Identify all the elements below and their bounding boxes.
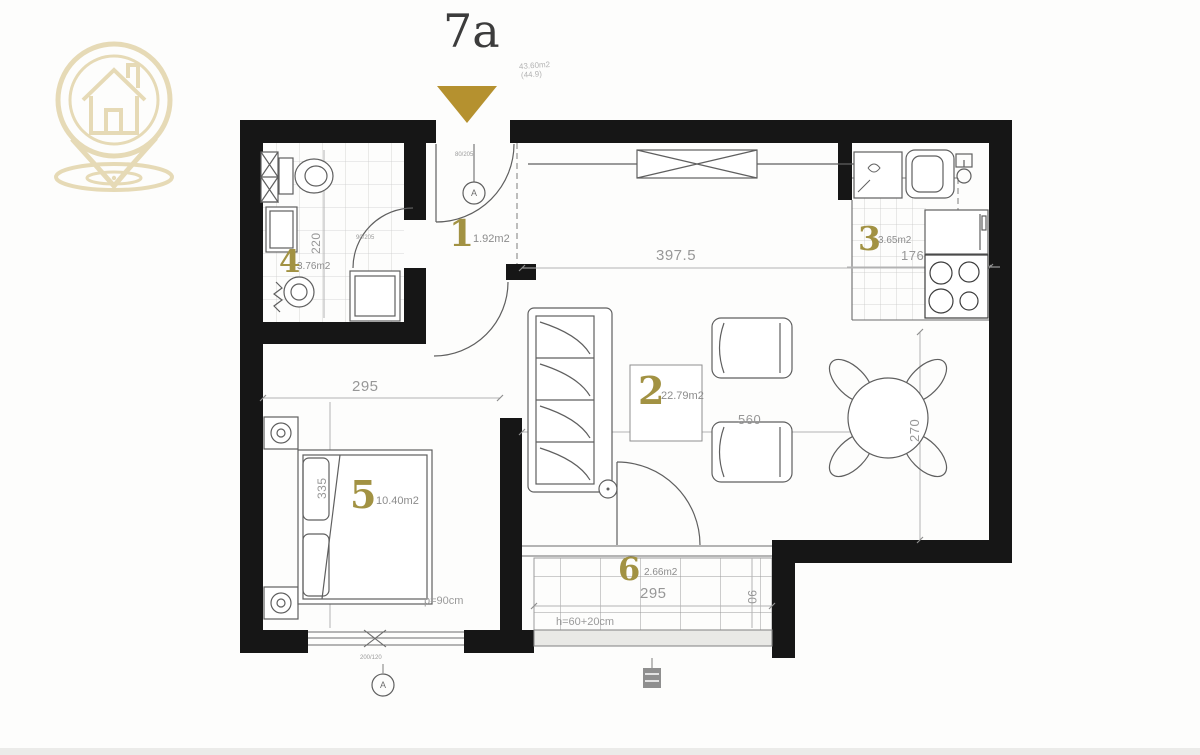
dim-kitchen-width: 176: [901, 249, 924, 262]
balcony-door: [617, 462, 700, 545]
kitchen-cabinet-icon: [925, 210, 988, 254]
dim-living-length: 560: [738, 413, 761, 426]
dim-balcony-depth: 90: [746, 590, 758, 604]
entry-door-arc: [436, 144, 514, 222]
room4-area: 3.76m2: [297, 262, 330, 272]
floorplan-page: 7a 43.60m2 (44.9): [0, 0, 1200, 755]
room2-area: 22.79m2: [661, 391, 704, 402]
sofa-icon: [528, 308, 612, 492]
armchair-icon: [712, 422, 792, 482]
towel-radiator-icon: [261, 152, 278, 202]
room6-number: 6: [618, 553, 640, 585]
dim-balcony-parapet: h=60+20cm: [556, 617, 614, 628]
dim-balcony-width: 295: [640, 586, 667, 601]
bathroom-door-size: 90/205: [356, 235, 374, 241]
room1-area: 1.92m2: [473, 234, 510, 245]
stove-icon: [925, 255, 988, 318]
dim-window-parapet: p=90cm: [424, 596, 463, 607]
dim-dining-depth: 270: [908, 419, 921, 442]
bedroom-window-size: 200/120: [360, 655, 382, 661]
toilet-icon: [279, 158, 333, 194]
room6-area: 2.66m2: [644, 568, 677, 578]
bedroom-furniture: [264, 417, 432, 619]
tv-sideboard-icon: [528, 150, 868, 178]
hall-door-arc: [434, 282, 508, 356]
room5-area: 10.40m2: [376, 496, 419, 507]
room3-area: 3.65m2: [878, 236, 911, 246]
nightstand-icon: [264, 587, 298, 619]
room5-number: 5: [350, 476, 376, 514]
entry-door-size: 80/205: [455, 152, 473, 158]
room1-number: 1: [449, 216, 474, 252]
dim-bedroom-width: 295: [352, 379, 379, 394]
kitchen-sink-icon: [906, 150, 972, 198]
bottom-edge-strip: [0, 748, 1200, 755]
balcony-extras: [372, 658, 661, 696]
window-marker-letter: A: [380, 681, 386, 690]
floorplan-drawing: [0, 0, 1200, 755]
dining-table-icon: [822, 352, 954, 484]
entry-marker-letter: A: [471, 189, 477, 198]
dim-living-width: 397.5: [656, 248, 696, 263]
nightstand-icon: [264, 417, 298, 449]
armchair-icon: [712, 318, 792, 378]
dim-bedroom-depth: 335: [316, 477, 328, 499]
dim-bathroom-depth: 220: [310, 232, 322, 254]
floor-lamp-icon: [599, 480, 617, 498]
washer-icon: [350, 271, 400, 321]
drain-symbol: [643, 668, 661, 688]
fridge-icon: [854, 152, 902, 198]
